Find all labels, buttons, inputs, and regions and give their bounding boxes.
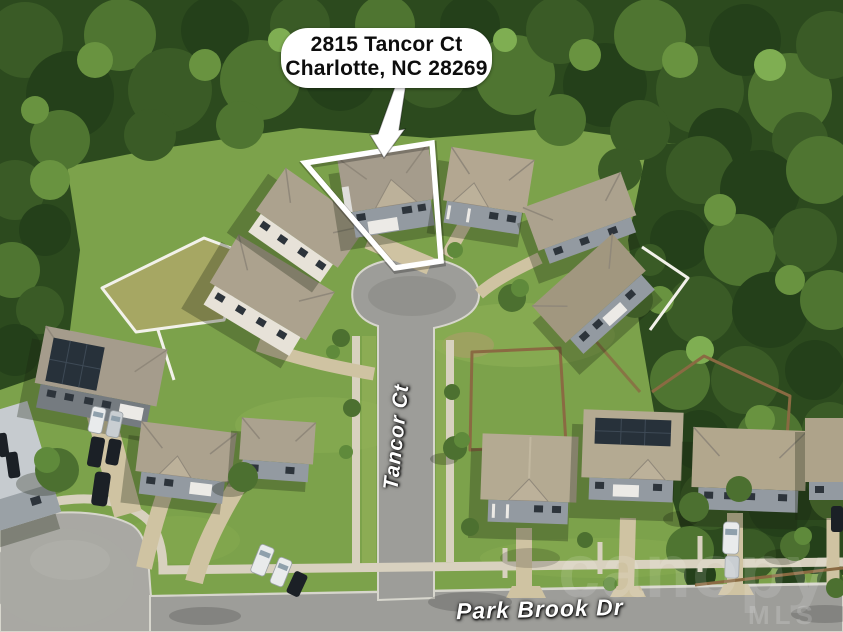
address-line2: Charlotte, NC 28269 <box>283 57 490 81</box>
aerial-photo: 2815 Tancor Ct Charlotte, NC 28269 Tanco… <box>0 0 843 632</box>
address-line1: 2815 Tancor Ct <box>283 33 490 57</box>
aerial-scene <box>0 0 843 632</box>
house <box>468 433 579 542</box>
house-solar <box>569 409 684 522</box>
address-callout: 2815 Tancor Ct Charlotte, NC 28269 <box>281 28 492 88</box>
street-label-park-brook-dr: Park Brook Dr <box>456 594 624 625</box>
house <box>795 418 843 520</box>
